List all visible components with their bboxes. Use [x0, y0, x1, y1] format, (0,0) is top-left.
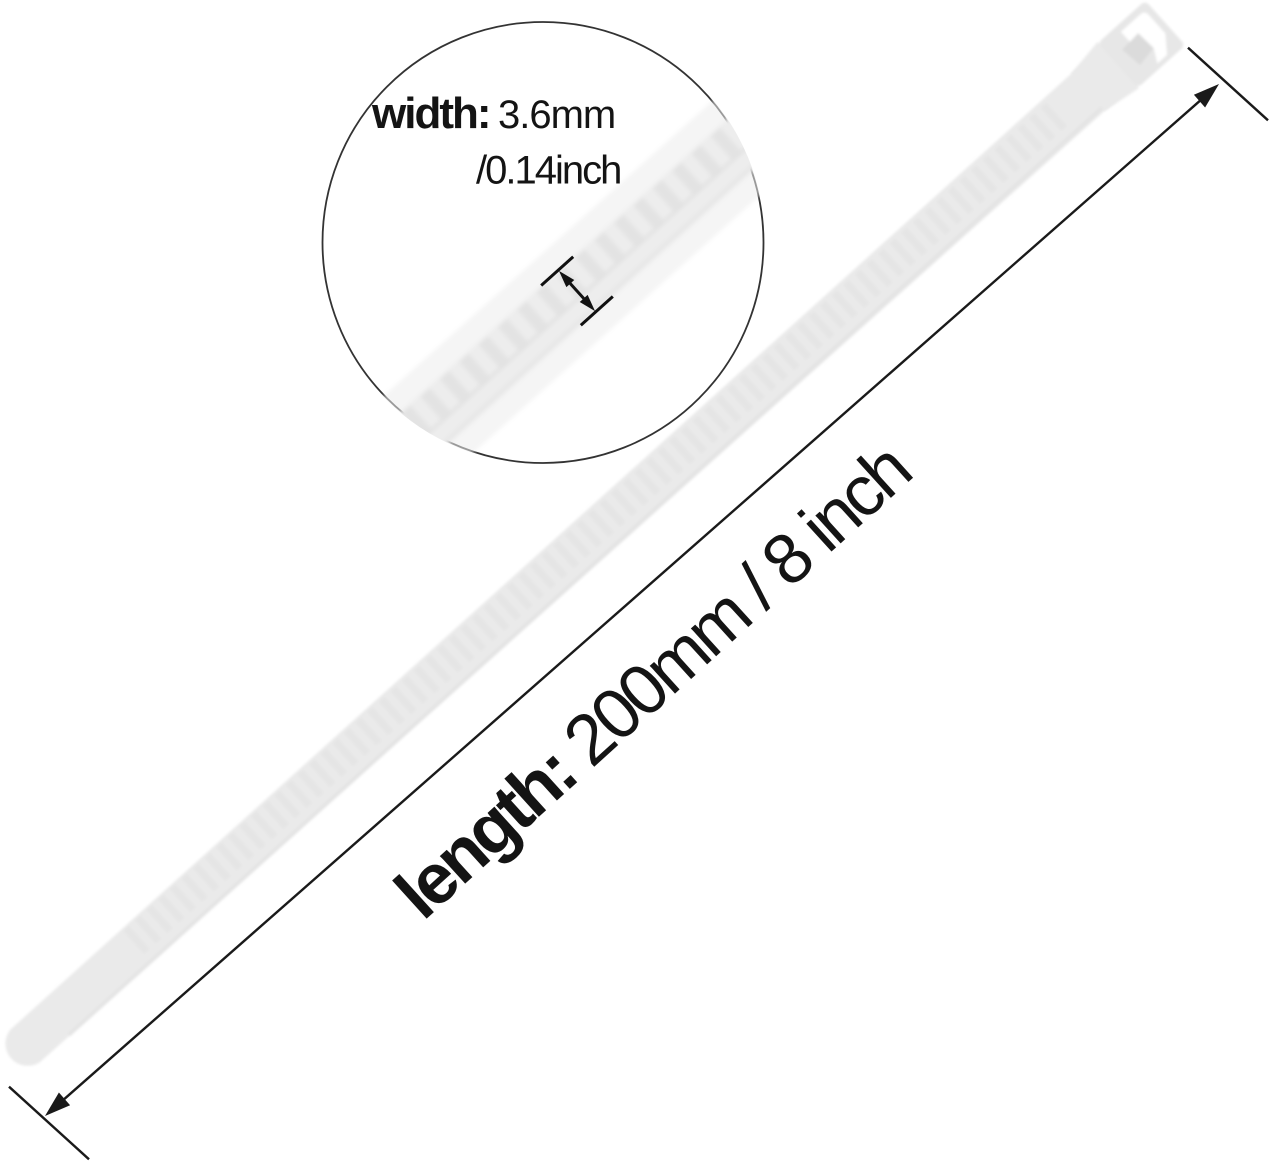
svg-text:3.6mm: 3.6mm	[498, 93, 615, 137]
svg-text:/0.14inch: /0.14inch	[476, 149, 620, 193]
svg-text:width:: width:	[371, 89, 490, 138]
